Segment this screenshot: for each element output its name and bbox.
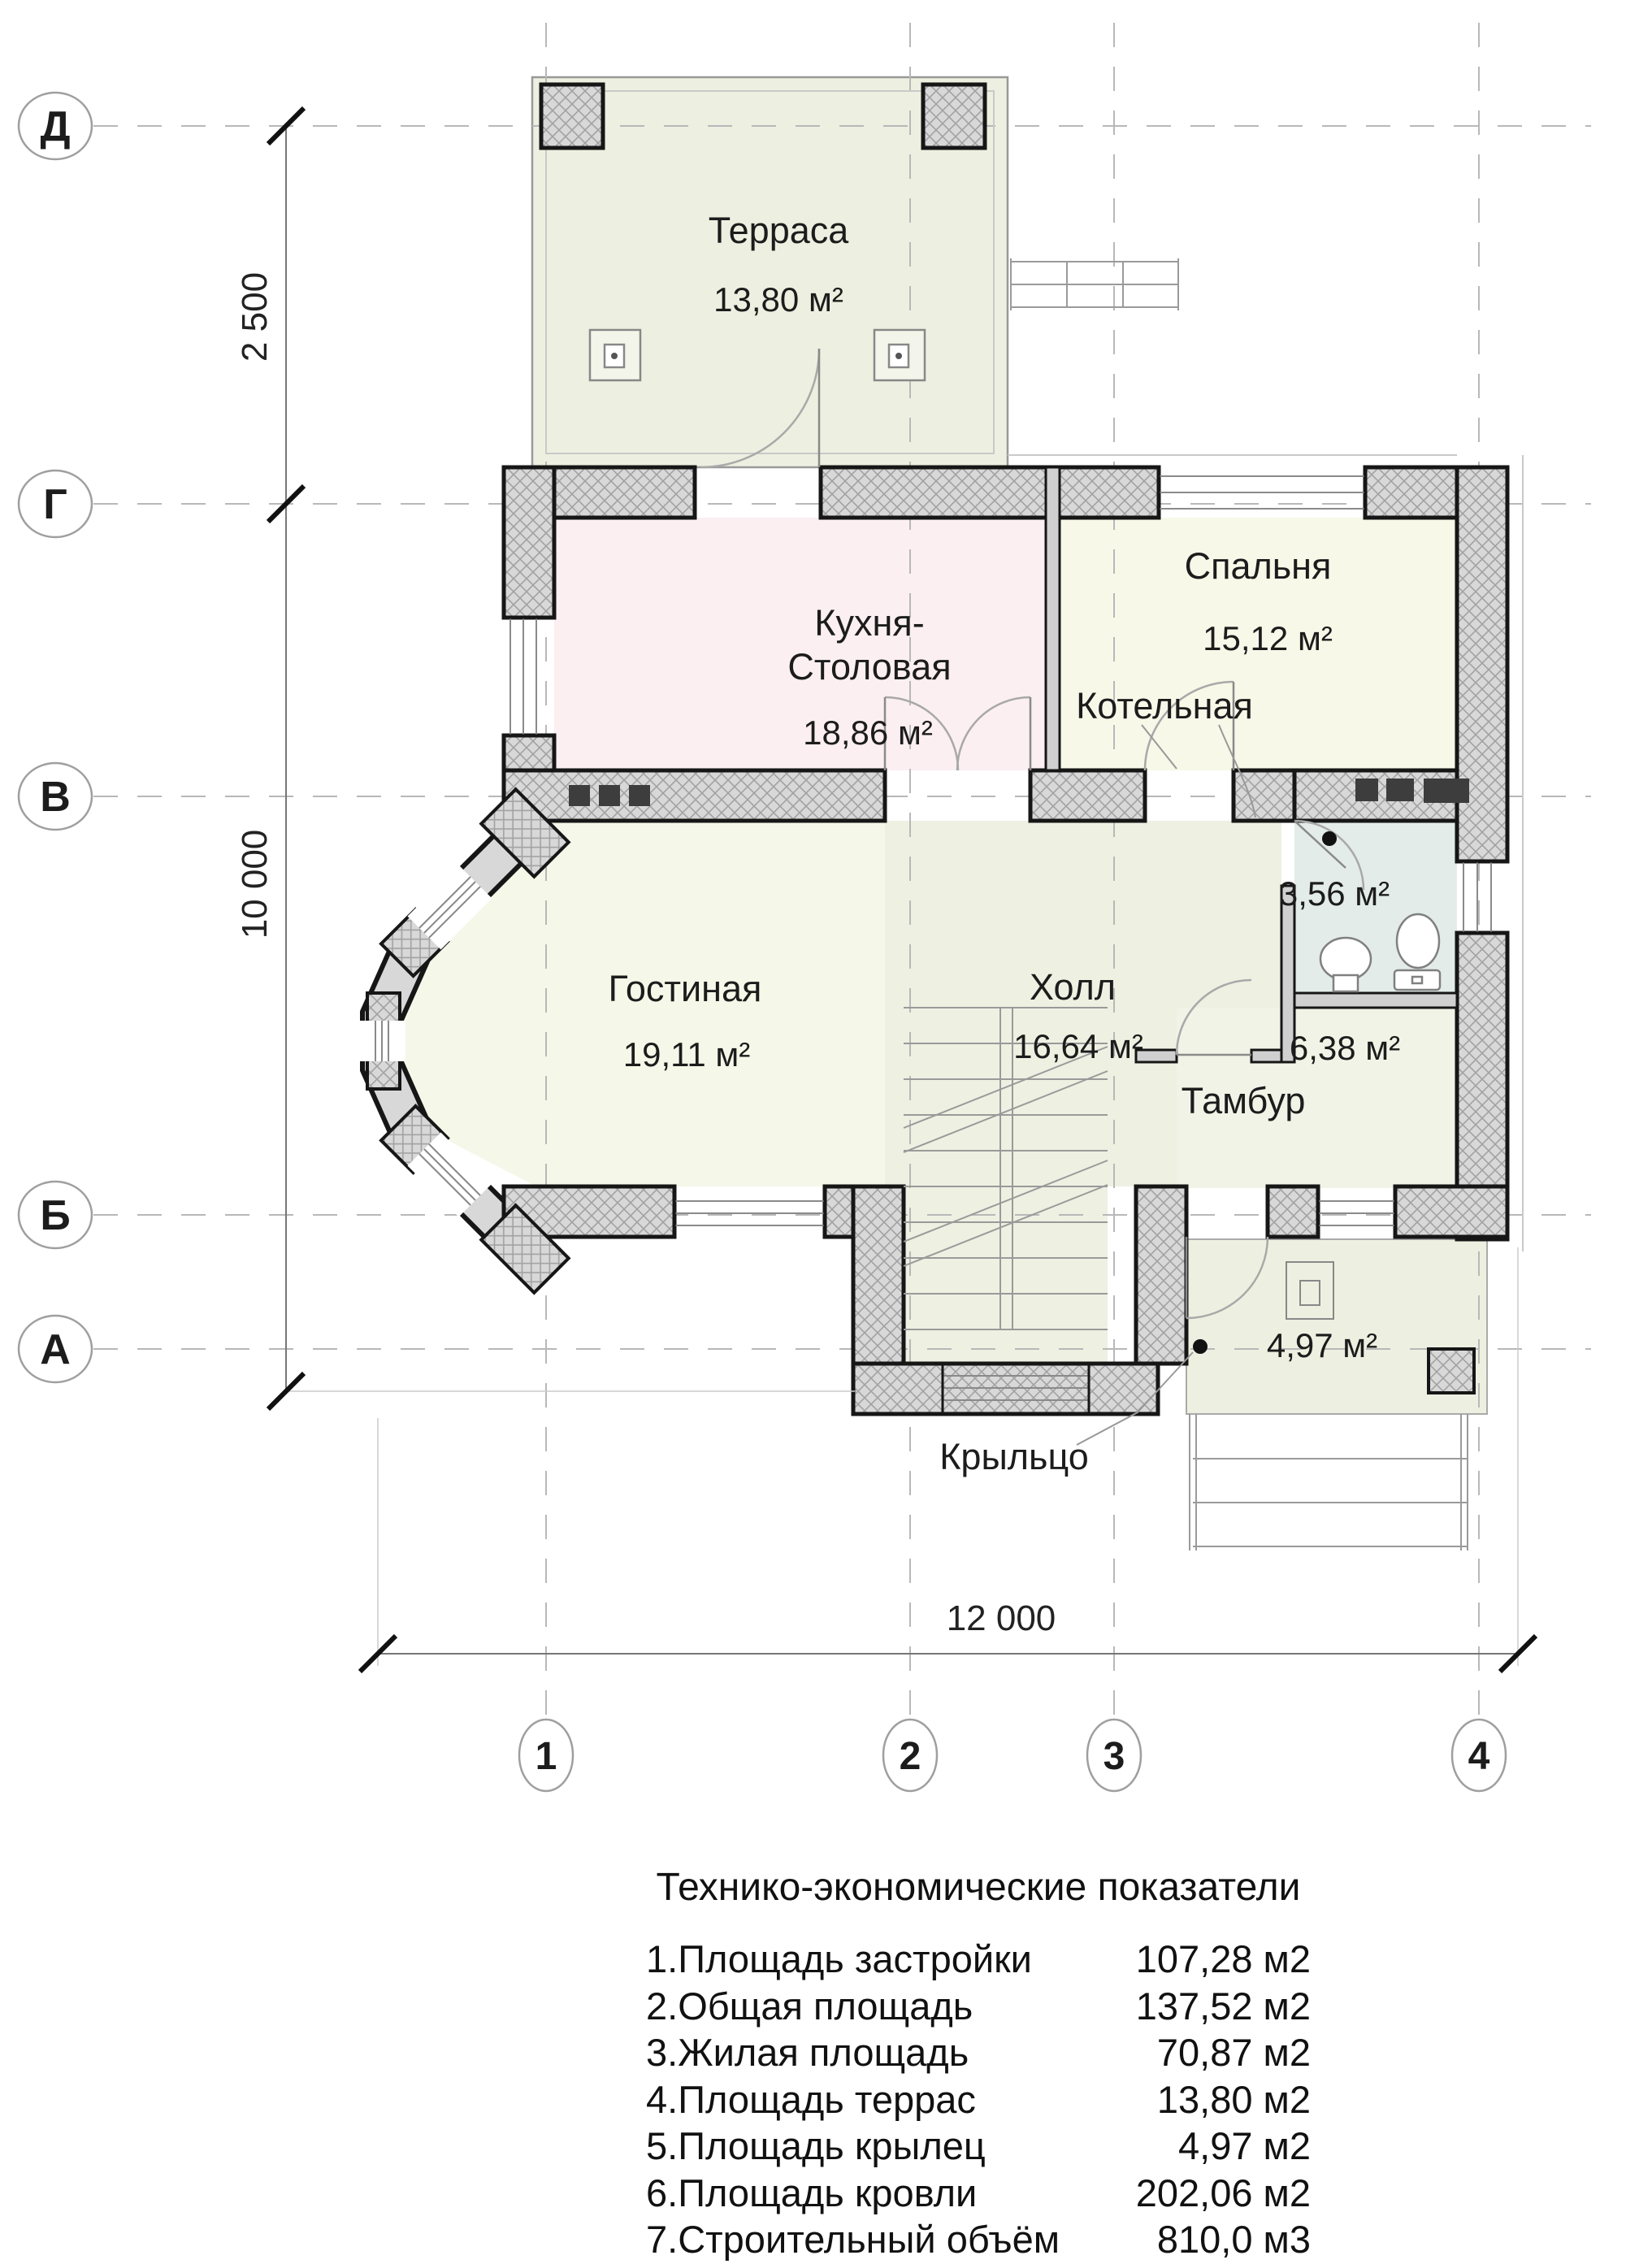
grid-col-2: 2 — [900, 1735, 921, 1778]
room-area-bedroom: 15,12 м² — [1203, 619, 1333, 657]
tech-row-1-value: 107,28 м2 — [1136, 1936, 1311, 1983]
grid-row-g: Г — [43, 481, 67, 528]
partition-kitchen-bedroom — [1046, 467, 1060, 770]
post-anchor-left — [611, 353, 618, 359]
tech-indicators-title: Технико-экономические показатели — [646, 1865, 1311, 1910]
post-anchor-right — [895, 353, 902, 359]
stairwell-floor — [904, 1186, 1108, 1364]
tech-row-6: 6.Площадь кровли 202,06 м2 — [646, 2170, 1311, 2217]
room-area-hall: 16,64 м² — [1013, 1027, 1143, 1065]
toilet-bowl — [1397, 914, 1439, 968]
grid-row-v: В — [40, 774, 71, 821]
grid-row-d: Д — [40, 103, 70, 150]
room-label-hall: Холл — [1030, 966, 1116, 1008]
toilet-button — [1412, 977, 1422, 983]
dim-label-10000: 10 000 — [235, 830, 275, 939]
room-label-terrace: Терраса — [709, 210, 850, 251]
room-area-living: 19,11 м² — [623, 1035, 751, 1073]
partition-hall-tambur-stub — [1251, 1050, 1281, 1062]
tech-row-4-value: 13,80 м2 — [1157, 2076, 1311, 2123]
tech-row-1: 1.Площадь застройки 107,28 м2 — [646, 1936, 1311, 1983]
tech-row-4: 4.Площадь террас 13,80 м2 — [646, 2076, 1311, 2123]
tech-row-6-value: 202,06 м2 — [1136, 2170, 1311, 2217]
room-label-bedroom: Спальня — [1185, 545, 1332, 587]
tech-row-1-label: 1.Площадь застройки — [646, 1936, 1032, 1983]
tech-row-7-value: 810,0 м3 — [1157, 2216, 1311, 2263]
room-area-kitchen: 18,86 м² — [803, 713, 933, 752]
room-label-porch: Крыльцо — [939, 1436, 1089, 1477]
grid-row-b: Б — [40, 1192, 70, 1239]
grid-col-1: 1 — [535, 1735, 557, 1778]
tech-row-3-label: 3.Жилая площадь — [646, 2029, 969, 2076]
tech-row-2-value: 137,52 м2 — [1136, 1983, 1311, 2030]
terrace-column-right — [923, 85, 985, 148]
room-area-bathroom: 3,56 м² — [1279, 874, 1390, 913]
dim-label-12000: 12 000 — [947, 1598, 1056, 1638]
tech-row-5: 5.Площадь крылец 4,97 м2 — [646, 2123, 1311, 2170]
grid-row-a: А — [40, 1326, 71, 1373]
grid-col-4: 4 — [1468, 1735, 1490, 1778]
room-label-kitchen-2: Столовая — [787, 646, 951, 687]
sink-base — [1333, 975, 1358, 991]
tech-row-6-label: 6.Площадь кровли — [646, 2170, 977, 2217]
partition-bathroom-tambur — [1294, 993, 1457, 1008]
terrace-column-left — [541, 85, 603, 148]
room-area-porch: 4,97 м² — [1267, 1326, 1377, 1364]
bathroom-marker-dot — [1322, 831, 1337, 846]
terrace-side-railing — [1011, 258, 1178, 310]
tech-row-2: 2.Общая площадь 137,52 м2 — [646, 1983, 1311, 2030]
tech-row-5-value: 4,97 м2 — [1178, 2123, 1311, 2170]
grid-col-3: 3 — [1104, 1735, 1125, 1778]
room-area-tambur: 6,38 м² — [1290, 1029, 1400, 1067]
tech-row-7: 7.Строительный объём 810,0 м3 — [646, 2216, 1311, 2263]
tech-indicators-table: Технико-экономические показатели 1.Площа… — [646, 1865, 1311, 2263]
tech-row-4-label: 4.Площадь террас — [646, 2076, 976, 2123]
tech-row-5-label: 5.Площадь крылец — [646, 2123, 986, 2170]
tech-row-2-label: 2.Общая площадь — [646, 1983, 973, 2030]
sink — [1320, 938, 1371, 980]
room-label-tambur: Тамбур — [1182, 1080, 1306, 1121]
dim-label-2500: 2 500 — [235, 272, 275, 362]
porch-marker-dot — [1193, 1339, 1208, 1354]
tech-row-7-label: 7.Строительный объём — [646, 2216, 1060, 2263]
room-area-terrace: 13,80 м² — [713, 280, 843, 319]
room-label-boiler: Котельная — [1076, 685, 1253, 726]
floor-plan-sheet: 2 500 10 000 12 000 Д Г В Б А 1 2 3 4 Те… — [0, 0, 1652, 2264]
kitchen-floor — [554, 518, 1046, 770]
porch-steps — [1190, 1414, 1468, 1551]
room-label-kitchen-1: Кухня- — [814, 602, 924, 644]
tech-row-3: 3.Жилая площадь 70,87 м2 — [646, 2029, 1311, 2076]
tech-row-3-value: 70,87 м2 — [1157, 2029, 1311, 2076]
porch-column — [1429, 1349, 1474, 1393]
hall-floor-lower — [885, 1062, 1177, 1186]
room-label-living: Гостиная — [609, 968, 762, 1009]
